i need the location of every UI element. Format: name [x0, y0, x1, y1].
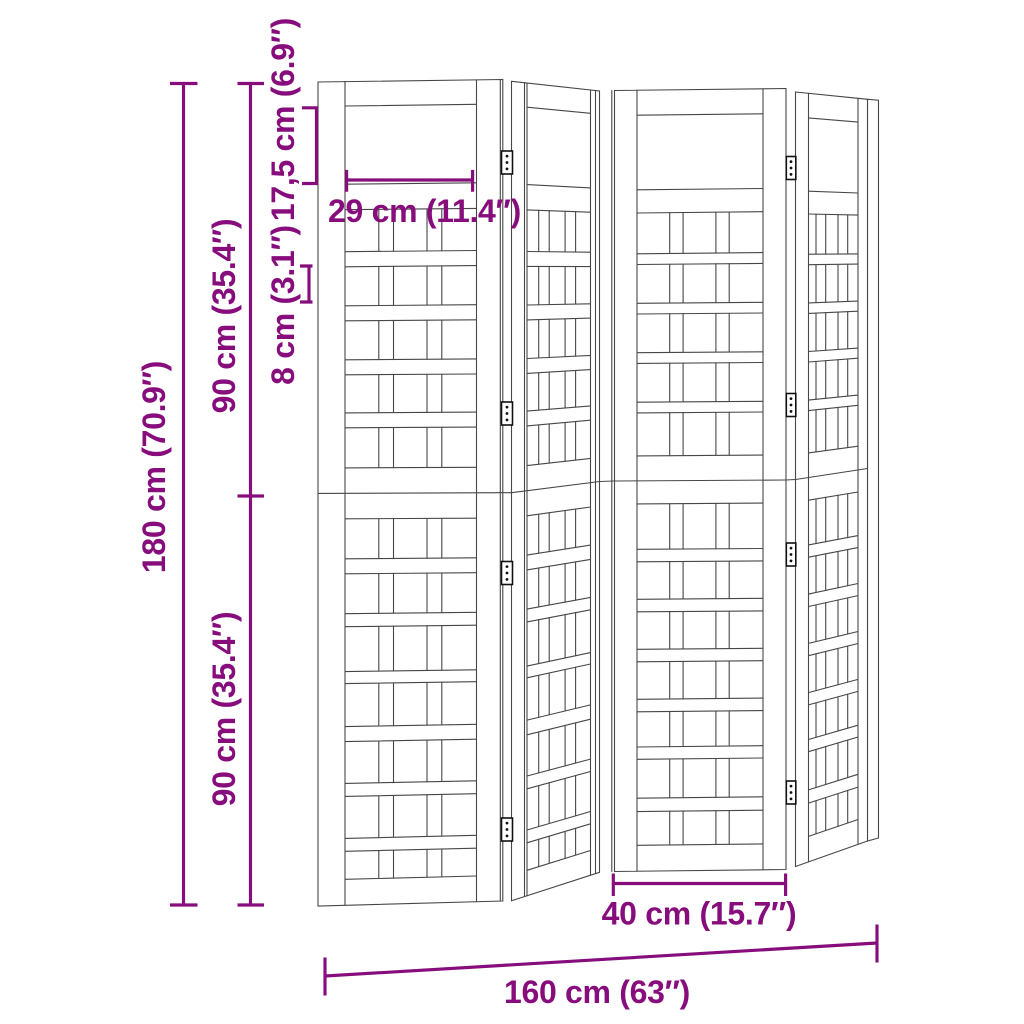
- svg-text:90 cm (35.4″): 90 cm (35.4″): [206, 219, 242, 414]
- svg-text:180 cm (70.9″): 180 cm (70.9″): [136, 361, 172, 573]
- svg-text:90 cm (35.4″): 90 cm (35.4″): [206, 612, 242, 807]
- svg-text:29 cm (11.4″): 29 cm (11.4″): [328, 193, 521, 229]
- svg-text:8 cm (3.1″): 8 cm (3.1″): [265, 225, 301, 385]
- svg-text:40 cm (15.7″): 40 cm (15.7″): [602, 896, 797, 932]
- svg-text:160 cm (63″): 160 cm (63″): [504, 974, 690, 1010]
- svg-text:17,5 cm (6.9″): 17,5 cm (6.9″): [265, 18, 301, 221]
